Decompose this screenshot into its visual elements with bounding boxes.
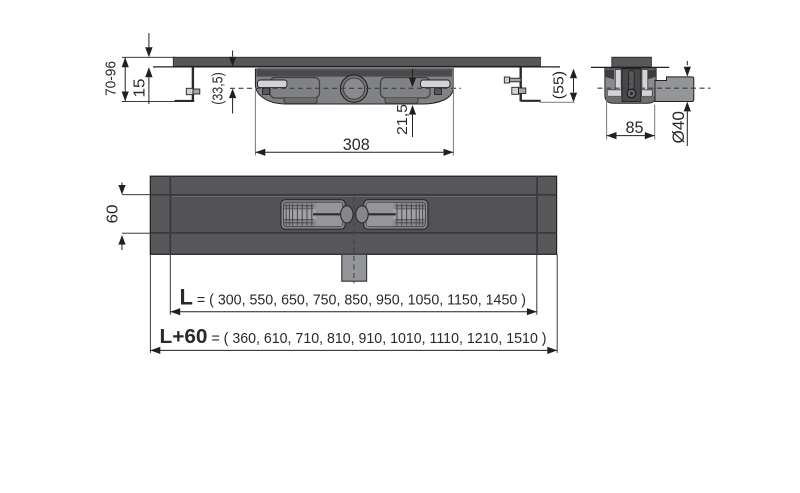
svg-text:70-96: 70-96 [102, 61, 119, 96]
svg-text:(55): (55) [550, 71, 567, 100]
svg-text:308: 308 [343, 136, 370, 154]
svg-text:60: 60 [105, 204, 122, 223]
svg-text:(33,5): (33,5) [209, 72, 226, 105]
svg-text:Ø40: Ø40 [670, 111, 688, 144]
svg-text:85: 85 [626, 119, 644, 137]
svg-text:21,5: 21,5 [394, 104, 411, 135]
svg-text:15: 15 [132, 79, 149, 98]
